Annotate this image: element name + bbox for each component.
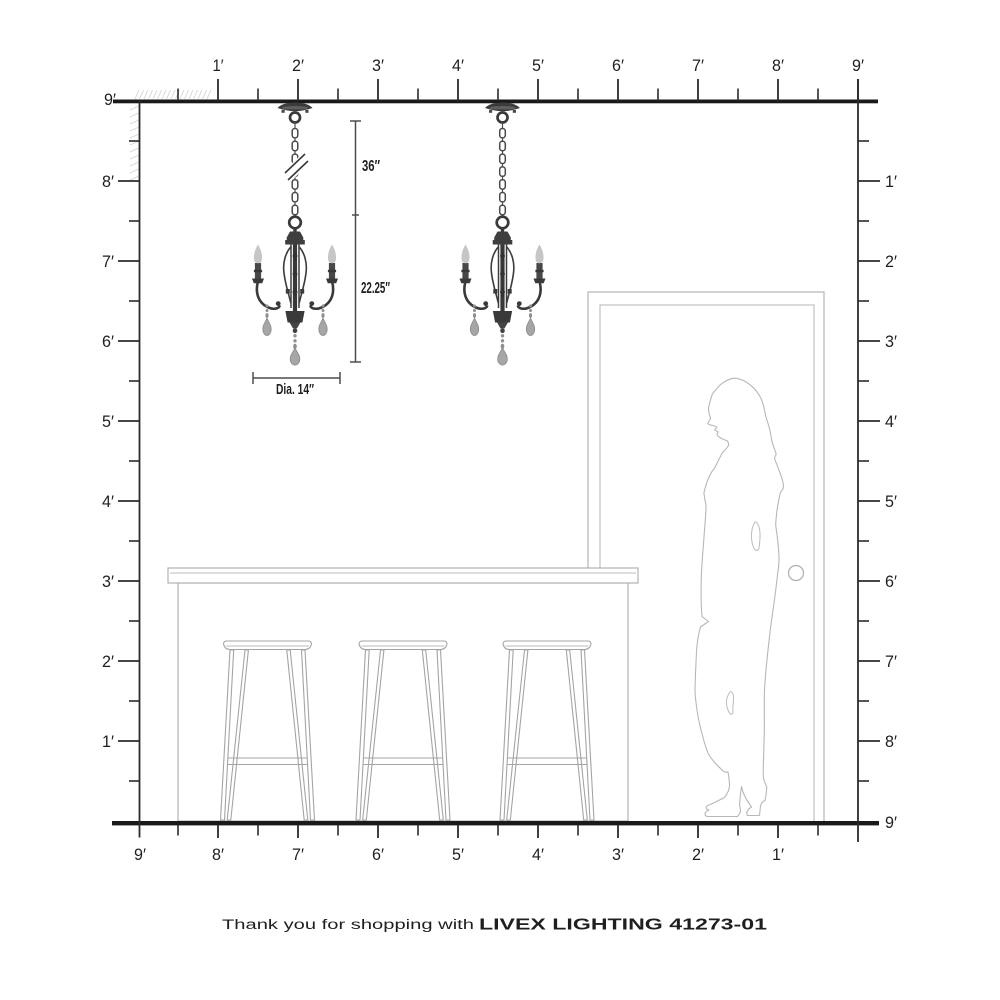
svg-text:8′: 8′ bbox=[885, 733, 897, 751]
svg-text:9′: 9′ bbox=[134, 846, 146, 864]
svg-text:8′: 8′ bbox=[772, 57, 784, 75]
svg-text:36″: 36″ bbox=[362, 158, 380, 175]
svg-text:3′: 3′ bbox=[102, 573, 114, 591]
svg-text:2′: 2′ bbox=[885, 253, 897, 271]
svg-text:1′: 1′ bbox=[102, 733, 114, 751]
svg-text:7′: 7′ bbox=[885, 653, 897, 671]
svg-text:6′: 6′ bbox=[612, 57, 624, 75]
svg-text:7′: 7′ bbox=[292, 846, 304, 864]
svg-text:LIVEX LIGHTING 41273-01: LIVEX LIGHTING 41273-01 bbox=[479, 917, 767, 934]
svg-text:6′: 6′ bbox=[102, 333, 114, 351]
svg-text:Dia. 14″: Dia. 14″ bbox=[276, 381, 314, 398]
svg-text:4′: 4′ bbox=[452, 57, 464, 75]
svg-text:3′: 3′ bbox=[372, 57, 384, 75]
svg-text:5′: 5′ bbox=[102, 413, 114, 431]
svg-text:2′: 2′ bbox=[692, 846, 704, 864]
svg-text:2′: 2′ bbox=[292, 57, 304, 75]
svg-text:5′: 5′ bbox=[452, 846, 464, 864]
svg-text:7′: 7′ bbox=[692, 57, 704, 75]
svg-text:9′: 9′ bbox=[104, 91, 116, 109]
svg-text:7′: 7′ bbox=[102, 253, 114, 271]
svg-text:3′: 3′ bbox=[885, 333, 897, 351]
svg-text:5′: 5′ bbox=[885, 493, 897, 511]
svg-text:22.25″: 22.25″ bbox=[361, 280, 390, 297]
svg-text:1′: 1′ bbox=[885, 173, 897, 191]
svg-text:8′: 8′ bbox=[212, 846, 224, 864]
svg-text:4′: 4′ bbox=[885, 413, 897, 431]
svg-text:1′: 1′ bbox=[213, 57, 224, 75]
svg-text:6′: 6′ bbox=[885, 573, 897, 591]
svg-text:3′: 3′ bbox=[612, 846, 624, 864]
svg-text:4′: 4′ bbox=[102, 493, 114, 511]
svg-text:2′: 2′ bbox=[102, 653, 114, 671]
svg-text:9′: 9′ bbox=[885, 814, 897, 832]
svg-text:4′: 4′ bbox=[532, 846, 544, 864]
svg-text:1′: 1′ bbox=[772, 846, 784, 864]
svg-text:6′: 6′ bbox=[372, 846, 384, 864]
svg-text:8′: 8′ bbox=[102, 173, 114, 191]
svg-text:Thank you for shopping with: Thank you for shopping with bbox=[222, 917, 474, 932]
svg-text:5′: 5′ bbox=[532, 57, 544, 75]
svg-text:9′: 9′ bbox=[852, 57, 864, 75]
